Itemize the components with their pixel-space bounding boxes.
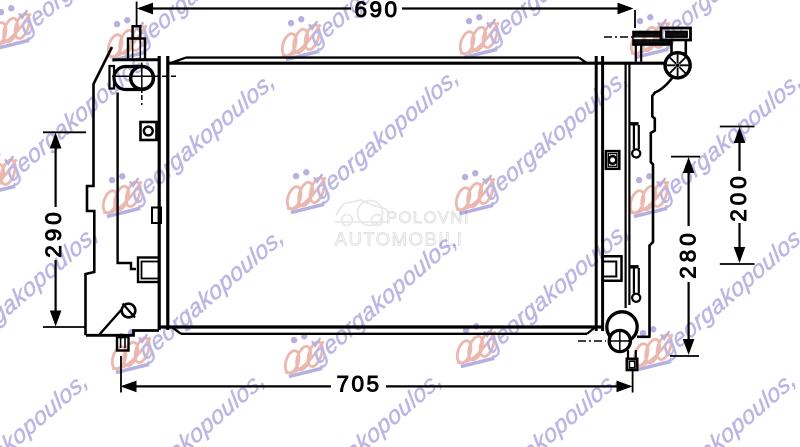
svg-text:705: 705 [336,372,381,397]
svg-text:200: 200 [726,172,751,222]
svg-text:POLOVNI: POLOVNI [386,209,470,227]
svg-text:280: 280 [676,229,701,279]
